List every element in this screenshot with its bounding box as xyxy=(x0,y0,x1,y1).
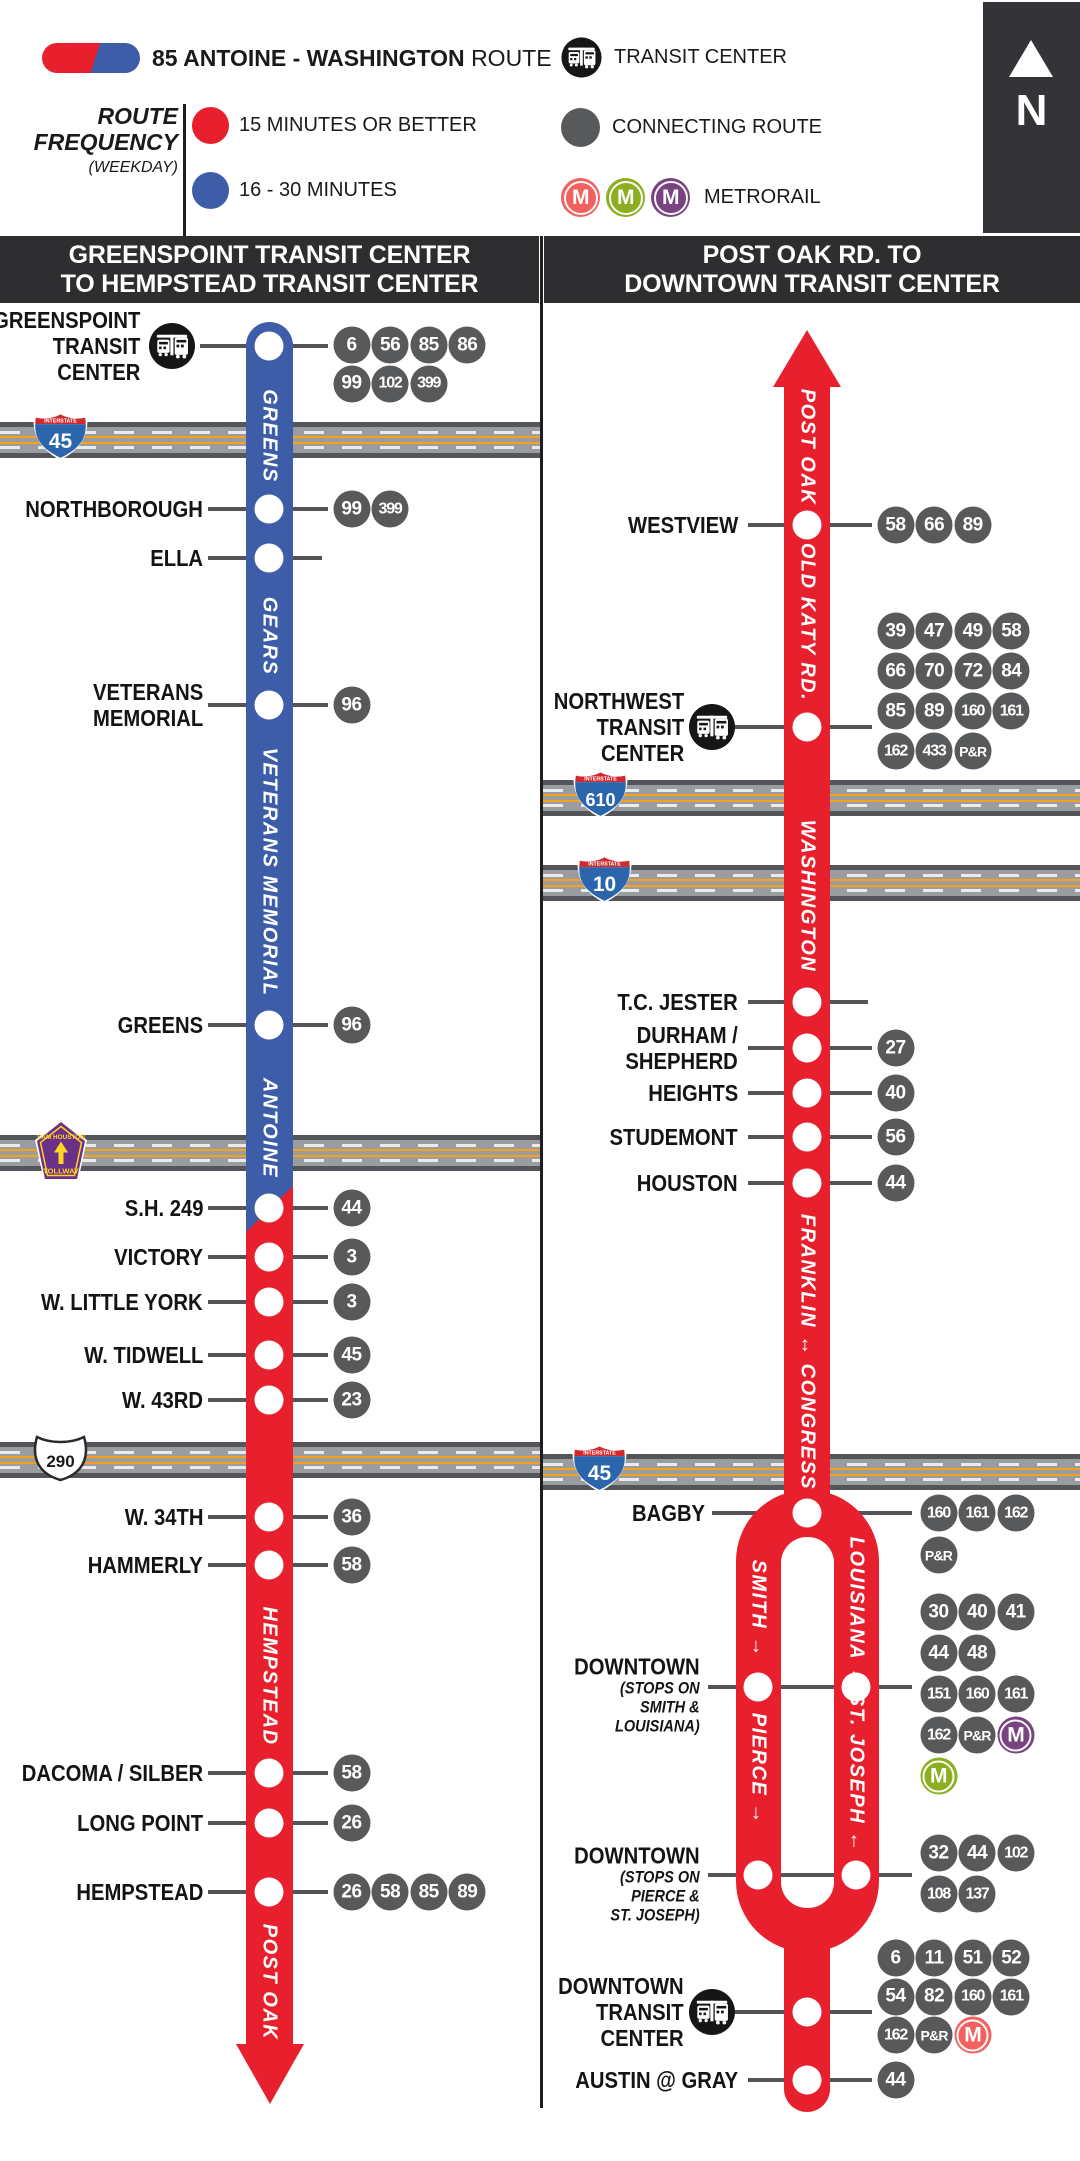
connecting-route-badge-102: 102 xyxy=(997,1835,1034,1872)
route-arrowhead-up xyxy=(773,330,841,387)
connecting-route-badge-54: 54 xyxy=(877,1978,914,2015)
svg-text:INTERSTATE: INTERSTATE xyxy=(583,1451,616,1457)
connecting-route-badge-44: 44 xyxy=(877,1165,914,1202)
stop-marker-t-c-jester xyxy=(793,988,822,1017)
route-title-bold: 85 ANTOINE - WASHINGTON xyxy=(152,45,465,71)
stop-tick-inner-downtown xyxy=(781,1873,834,1877)
stop-marker-dacoma-silber xyxy=(255,1759,284,1788)
stop-label-veterans-memorial: VETERANSMEMORIAL xyxy=(93,679,203,731)
connecting-route-badge-58: 58 xyxy=(993,613,1030,650)
connecting-route-badge-162: 162 xyxy=(877,2017,914,2054)
legend-metrorail: MMM METRORAIL xyxy=(561,178,821,217)
metrorail-line-icon-1: M xyxy=(606,178,645,217)
stop-label-downtown: DOWNTOWN(STOPS ONPIERCE &ST. JOSEPH) xyxy=(574,1843,700,1926)
stop-label-heights: HEIGHTS xyxy=(648,1080,738,1106)
transit-center-icon xyxy=(149,323,196,370)
connecting-route-badge-102: 102 xyxy=(372,365,409,402)
stop-marker-greens xyxy=(255,1011,284,1040)
connecting-route-badge-26: 26 xyxy=(333,1805,370,1842)
highway-shield-45: INTERSTATE 45 xyxy=(571,1443,628,1498)
connecting-route-badge-161: 161 xyxy=(993,693,1030,730)
route-arrowhead-down xyxy=(236,2044,304,2104)
connecting-route-badge-96: 96 xyxy=(333,1007,370,1044)
connecting-route-badge-39: 39 xyxy=(877,613,914,650)
connecting-route-badge-96: 96 xyxy=(333,687,370,724)
stop-label-victory: VICTORY xyxy=(114,1244,203,1270)
transit-center-icon xyxy=(689,1989,736,2036)
connecting-route-badge-52: 52 xyxy=(993,1940,1030,1977)
direction-arrow-down: → xyxy=(748,1629,770,1656)
svg-text:INTERSTATE: INTERSTATE xyxy=(44,419,77,425)
park-and-ride-badge: P&R xyxy=(959,1717,996,1754)
stop-marker-studemont xyxy=(793,1123,822,1152)
connecting-route-badge-72: 72 xyxy=(954,653,991,690)
connecting-route-badge-56: 56 xyxy=(372,327,409,364)
highway-shield-610: INTERSTATE 610 xyxy=(572,769,629,824)
stop-label-greenspoint-transit-center: GREENSPOINTTRANSITCENTER xyxy=(0,307,140,385)
connecting-route-badge-44: 44 xyxy=(877,2062,914,2099)
connecting-route-badge-82: 82 xyxy=(916,1978,953,2015)
stop-marker-downtown-transit-center xyxy=(793,1998,822,2027)
street-label-greens: GREENS xyxy=(258,389,281,482)
street-label-smith: SMITH→ xyxy=(747,1560,770,1657)
connecting-route-badge-99: 99 xyxy=(333,365,370,402)
connecting-route-badge-151: 151 xyxy=(920,1676,957,1713)
connecting-route-badge-160: 160 xyxy=(954,1978,991,2015)
connecting-route-badge-161: 161 xyxy=(997,1676,1034,1713)
connecting-route-badge-89: 89 xyxy=(954,507,991,544)
stop-label-hammerly: HAMMERLY xyxy=(88,1552,203,1578)
route-title-suffix: ROUTE xyxy=(471,45,552,71)
column-header-right: POST OAK RD. TO DOWNTOWN TRANSIT CENTER xyxy=(544,236,1080,303)
column-header-left: GREENSPOINT TRANSIT CENTER TO HEMPSTEAD … xyxy=(0,236,539,303)
stop-label-w-tidwell: W. TIDWELL xyxy=(84,1342,203,1368)
street-label-post-oak: POST OAK xyxy=(258,1924,281,2040)
connecting-route-badge-51: 51 xyxy=(954,1940,991,1977)
stop-label-downtown-transit-center: DOWNTOWNTRANSITCENTER xyxy=(558,1973,684,2051)
direction-arrow-up: ← xyxy=(846,1824,868,1851)
connecting-route-badge-58: 58 xyxy=(877,507,914,544)
connecting-route-badge-58: 58 xyxy=(372,1874,409,1911)
connecting-route-badge-161: 161 xyxy=(993,1978,1030,2015)
connecting-route-badge-26: 26 xyxy=(333,1874,370,1911)
connecting-route-badge-137: 137 xyxy=(959,1876,996,1913)
svg-text:INTERSTATE: INTERSTATE xyxy=(584,777,617,783)
street-label-washington: WASHINGTON xyxy=(796,820,819,972)
connecting-route-badge-162: 162 xyxy=(920,1717,957,1754)
svg-text:TOLLWAY: TOLLWAY xyxy=(43,1167,79,1176)
highway-shield-45: INTERSTATE 45 xyxy=(32,411,89,466)
column-divider xyxy=(540,236,543,2108)
svg-text:290: 290 xyxy=(46,1452,74,1471)
downtown-loop-hole xyxy=(781,1537,834,1908)
connecting-route-badge-162: 162 xyxy=(997,1495,1034,1532)
street-label-post-oak: POST OAK xyxy=(796,389,819,505)
stop-marker-greenspoint-transit-center xyxy=(255,332,284,361)
stop-tick-inner-downtown xyxy=(781,1685,834,1689)
frequency-title: ROUTE FREQUENCY (WEEKDAY) xyxy=(34,103,178,181)
transit-center-icon xyxy=(689,704,736,751)
connecting-route-badge-11: 11 xyxy=(916,1940,953,1977)
stop-marker-w-43rd xyxy=(255,1386,284,1415)
connecting-route-badge-3: 3 xyxy=(333,1239,370,1276)
connecting-route-icon xyxy=(561,108,600,147)
frequency-swatch-red xyxy=(192,107,229,144)
connecting-route-badge-85: 85 xyxy=(410,1874,447,1911)
connecting-route-badge-45: 45 xyxy=(333,1337,370,1374)
stop-label-w-little-york: W. LITTLE YORK xyxy=(41,1289,203,1315)
connecting-route-badge-58: 58 xyxy=(333,1547,370,1584)
park-and-ride-badge: P&R xyxy=(916,2017,953,2054)
connecting-route-badge-85: 85 xyxy=(410,327,447,364)
stop-marker-long-point xyxy=(255,1809,284,1838)
connecting-route-badge-66: 66 xyxy=(916,507,953,544)
connecting-route-badge-399: 399 xyxy=(372,491,409,528)
stop-marker-downtown-right xyxy=(842,1673,871,1702)
legend-connecting-route: CONNECTING ROUTE xyxy=(561,108,822,147)
stop-label-northwest-transit-center: NORTHWESTTRANSITCENTER xyxy=(554,688,684,766)
stop-label-northborough: NORTHBOROUGH xyxy=(25,496,203,522)
street-label-gears: GEARS xyxy=(258,597,281,676)
metrorail-line-icon-2: M xyxy=(651,178,690,217)
stop-marker-northwest-transit-center xyxy=(793,713,822,742)
connecting-route-badge-49: 49 xyxy=(954,613,991,650)
connecting-route-badge-108: 108 xyxy=(920,1876,957,1913)
connecting-route-badge-66: 66 xyxy=(877,653,914,690)
direction-arrow-down: → xyxy=(748,1796,770,1823)
street-label-hempstead: HEMPSTEAD xyxy=(258,1606,281,1745)
connecting-route-badge-40: 40 xyxy=(877,1075,914,1112)
connecting-route-badge-89: 89 xyxy=(449,1874,486,1911)
connecting-route-badge-160: 160 xyxy=(920,1495,957,1532)
svg-text:610: 610 xyxy=(585,790,615,810)
stop-marker-houston xyxy=(793,1169,822,1198)
connecting-route-badge-56: 56 xyxy=(877,1119,914,1156)
highway-shield-10: INTERSTATE 10 xyxy=(576,854,633,909)
stop-marker-bagby xyxy=(793,1499,822,1528)
north-label: N xyxy=(983,86,1080,136)
connecting-route-badge-23: 23 xyxy=(333,1382,370,1419)
connecting-route-badge-161: 161 xyxy=(959,1495,996,1532)
stop-marker-w-little-york xyxy=(255,1288,284,1317)
connecting-route-badge-85: 85 xyxy=(877,693,914,730)
svg-text:INTERSTATE: INTERSTATE xyxy=(588,862,621,868)
connecting-route-badge-160: 160 xyxy=(954,693,991,730)
street-label-antoine: ANTOINE xyxy=(258,1078,281,1178)
highway-shield-290: 290 xyxy=(33,1434,88,1487)
connecting-route-badge-399: 399 xyxy=(410,365,447,402)
stop-label-s-h-249: S.H. 249 xyxy=(124,1195,203,1221)
stop-label-downtown: DOWNTOWN(STOPS ONSMITH &LOUISIANA) xyxy=(574,1654,700,1737)
route-map-page: 85 ANTOINE - WASHINGTON ROUTE ROUTE FREQ… xyxy=(0,0,1080,2161)
connecting-route-badge-48: 48 xyxy=(959,1635,996,1672)
stop-marker-downtown-left xyxy=(744,1673,773,1702)
connecting-route-badge-89: 89 xyxy=(916,693,953,730)
street-label-veterans-memorial: VETERANS MEMORIAL xyxy=(258,748,281,997)
park-and-ride-badge: P&R xyxy=(954,733,991,770)
metrorail-badge-green: M xyxy=(920,1758,957,1795)
transit-center-icon xyxy=(561,37,602,78)
legend-transit-center: TRANSIT CENTER xyxy=(561,37,787,78)
stop-marker-w-tidwell xyxy=(255,1341,284,1370)
route-color-pill xyxy=(42,43,140,73)
connecting-route-badge-47: 47 xyxy=(916,613,953,650)
connecting-route-badge-44: 44 xyxy=(333,1190,370,1227)
street-label-louisiana: LOUISIANA← xyxy=(845,1537,868,1688)
route-title: 85 ANTOINE - WASHINGTON ROUTE xyxy=(152,45,552,72)
frequency-item-15min: 15 MINUTES OR BETTER xyxy=(192,106,477,144)
connecting-route-badge-160: 160 xyxy=(959,1676,996,1713)
stop-marker-downtown-left xyxy=(744,1861,773,1890)
stop-label-ella: ELLA xyxy=(150,545,203,571)
legend-divider xyxy=(183,104,186,236)
connecting-route-badge-70: 70 xyxy=(916,653,953,690)
svg-text:10: 10 xyxy=(593,873,616,896)
connecting-route-badge-433: 433 xyxy=(916,733,953,770)
stop-label-long-point: LONG POINT xyxy=(77,1810,203,1836)
stop-marker-northborough xyxy=(255,495,284,524)
stop-marker-hammerly xyxy=(255,1551,284,1580)
north-arrow-icon xyxy=(1009,40,1053,77)
connecting-route-badge-3: 3 xyxy=(333,1284,370,1321)
street-label-pierce: PIERCE→ xyxy=(747,1713,770,1823)
stop-marker-durham-shepherd xyxy=(793,1034,822,1063)
stop-label-austin-gray: AUSTIN @ GRAY xyxy=(575,2067,738,2093)
stop-label-greens: GREENS xyxy=(118,1012,203,1038)
highway-shield-sam-houston-tollway: SAM HOUSTON TOLLWAY xyxy=(33,1120,89,1187)
connecting-route-badge-6: 6 xyxy=(877,1940,914,1977)
stop-marker-hempstead xyxy=(255,1878,284,1907)
stop-marker-downtown-right xyxy=(842,1861,871,1890)
connecting-route-badge-86: 86 xyxy=(449,327,486,364)
stop-marker-austin-gray xyxy=(793,2066,822,2095)
stop-label-durham-shepherd: DURHAM /SHEPHERD xyxy=(626,1022,738,1074)
metrorail-badge-red: M xyxy=(954,2017,991,2054)
connecting-route-badge-41: 41 xyxy=(997,1594,1034,1631)
stop-marker-westview xyxy=(793,511,822,540)
stop-label-w-34th: W. 34TH xyxy=(124,1504,203,1530)
legend: 85 ANTOINE - WASHINGTON ROUTE ROUTE FREQ… xyxy=(0,0,1080,236)
connecting-route-badge-6: 6 xyxy=(333,327,370,364)
stop-label-t-c-jester: T.C. JESTER xyxy=(618,989,738,1015)
connecting-route-badge-44: 44 xyxy=(920,1635,957,1672)
stop-label-dacoma-silber: DACOMA / SILBER xyxy=(22,1760,203,1786)
frequency-subtitle: (WEEKDAY) xyxy=(34,155,178,181)
park-and-ride-badge: P&R xyxy=(920,1537,957,1574)
connecting-route-badge-58: 58 xyxy=(333,1755,370,1792)
connecting-route-badge-44: 44 xyxy=(959,1835,996,1872)
stop-marker-victory xyxy=(255,1243,284,1272)
stop-marker-s-h-249 xyxy=(255,1194,284,1223)
street-label-old-katy-rd-: OLD KATY RD. xyxy=(796,543,819,701)
connecting-route-badge-162: 162 xyxy=(877,733,914,770)
stop-marker-heights xyxy=(793,1079,822,1108)
svg-text:SAM HOUSTON: SAM HOUSTON xyxy=(37,1134,85,1141)
stop-label-w-43rd: W. 43RD xyxy=(122,1387,203,1413)
frequency-swatch-blue xyxy=(192,172,229,209)
connecting-route-badge-30: 30 xyxy=(920,1594,957,1631)
svg-text:45: 45 xyxy=(49,430,73,453)
metrorail-badge-purple: M xyxy=(997,1717,1034,1754)
connecting-route-badge-40: 40 xyxy=(959,1594,996,1631)
stop-label-westview: WESTVIEW xyxy=(628,512,738,538)
connecting-route-badge-99: 99 xyxy=(333,491,370,528)
stop-label-hempstead: HEMPSTEAD xyxy=(76,1879,203,1905)
street-label-franklin-congress: FRANKLIN ↔ CONGRESS xyxy=(796,1214,819,1490)
street-label-st-joseph: ST. JOSEPH← xyxy=(845,1693,868,1851)
svg-text:45: 45 xyxy=(588,1462,612,1485)
stop-marker-veterans-memorial xyxy=(255,691,284,720)
stop-label-bagby: BAGBY xyxy=(632,1500,705,1526)
connecting-route-badge-84: 84 xyxy=(993,653,1030,690)
stop-marker-w-34th xyxy=(255,1503,284,1532)
stop-marker-ella xyxy=(255,544,284,573)
stop-label-houston: HOUSTON xyxy=(637,1170,738,1196)
stop-label-studemont: STUDEMONT xyxy=(610,1124,738,1150)
connecting-route-badge-32: 32 xyxy=(920,1835,957,1872)
metrorail-line-icon-0: M xyxy=(561,178,600,217)
north-indicator: N xyxy=(983,2,1080,233)
frequency-item-30min: 16 - 30 MINUTES xyxy=(192,171,397,209)
connecting-route-badge-36: 36 xyxy=(333,1499,370,1536)
connecting-route-badge-27: 27 xyxy=(877,1030,914,1067)
